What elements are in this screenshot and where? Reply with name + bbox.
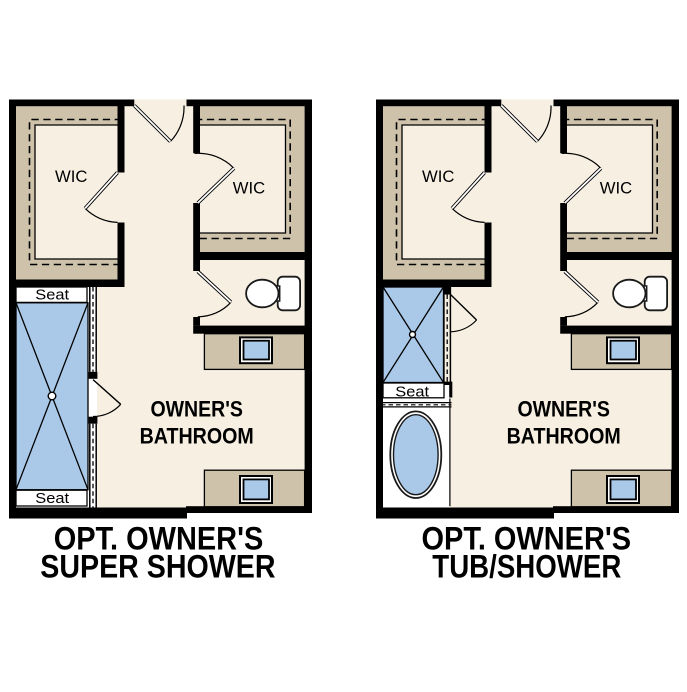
svg-text:WIC: WIC — [55, 168, 87, 186]
svg-text:BATHROOM: BATHROOM — [140, 424, 254, 449]
svg-text:WIC: WIC — [233, 180, 265, 198]
svg-text:Seat: Seat — [35, 491, 69, 507]
svg-text:TUB/SHOWER: TUB/SHOWER — [432, 549, 621, 585]
svg-text:Seat: Seat — [35, 288, 69, 304]
svg-text:WIC: WIC — [422, 168, 454, 186]
svg-text:SUPER SHOWER: SUPER SHOWER — [40, 549, 275, 585]
svg-text:OWNER'S: OWNER'S — [150, 396, 243, 421]
svg-text:Seat: Seat — [395, 384, 429, 400]
svg-text:WIC: WIC — [600, 180, 632, 198]
svg-text:BATHROOM: BATHROOM — [507, 424, 621, 449]
svg-text:OWNER'S: OWNER'S — [517, 396, 610, 421]
